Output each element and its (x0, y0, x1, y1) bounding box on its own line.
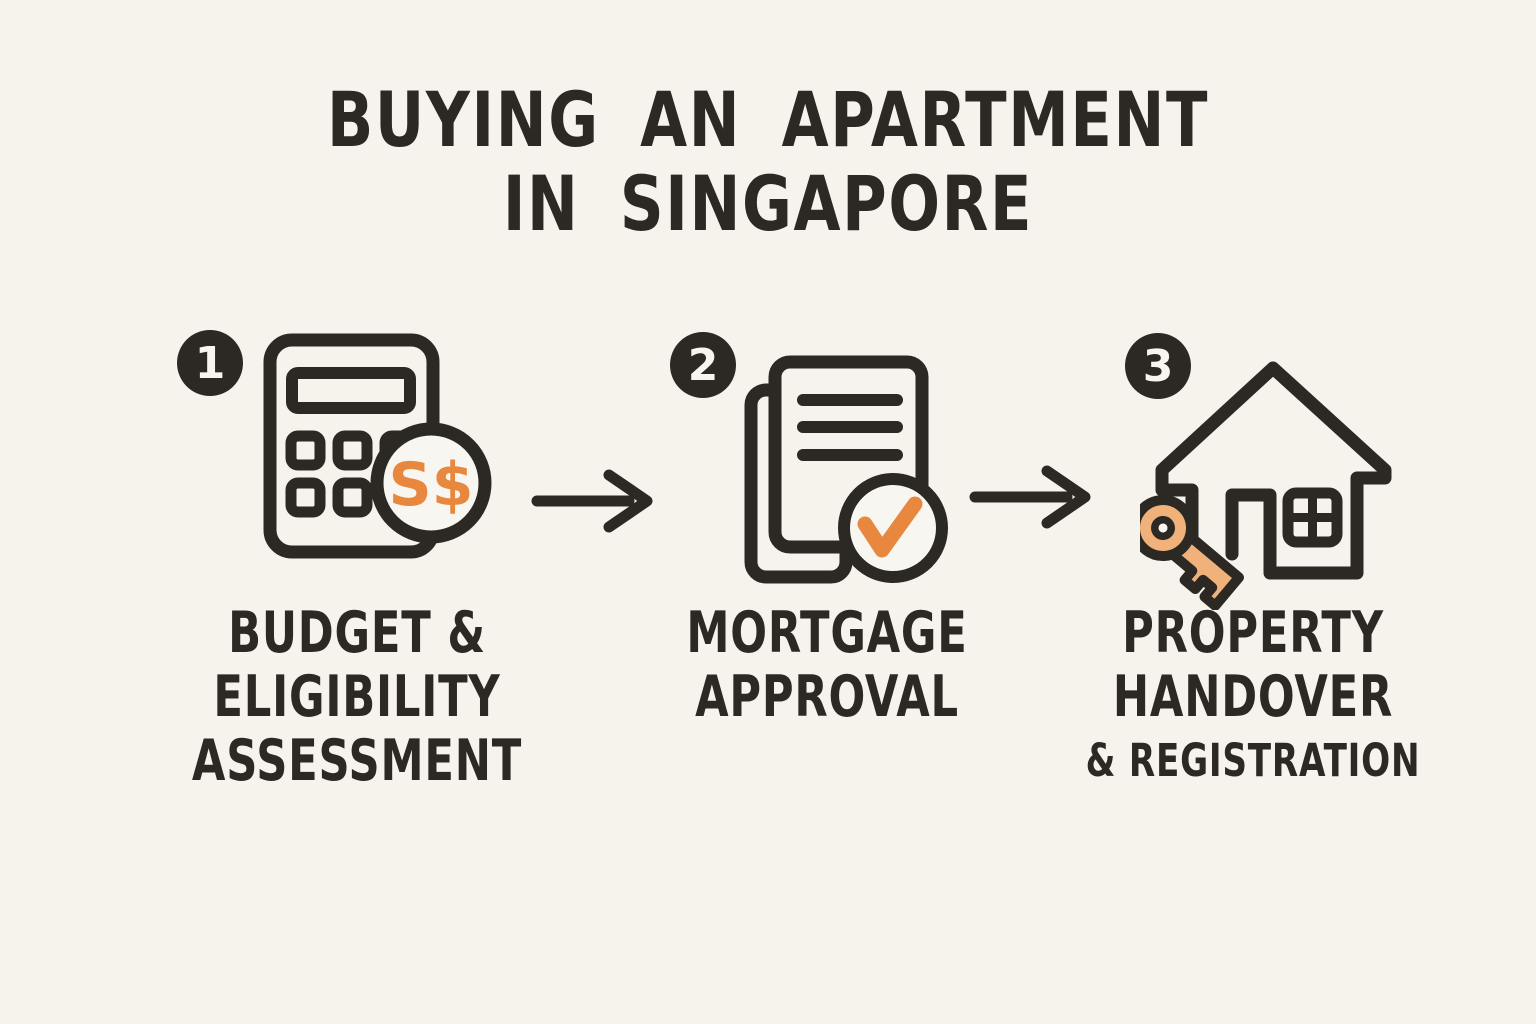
documents-checkmark-icon (740, 343, 955, 588)
calculator-display (292, 373, 410, 408)
page-title-line-1: BUYING AN APARTMENT (154, 78, 1383, 162)
arrow-right-icon (963, 458, 1103, 538)
step-3-label: PROPERTY HANDOVER & REGISTRATION (1071, 601, 1436, 793)
page-title: BUYING AN APARTMENT IN SINGAPORE (154, 78, 1383, 246)
step-1-number-badge: 1 (177, 330, 243, 396)
window (1288, 493, 1337, 542)
step-1-label: BUDGET & ELIGIBILITY ASSESSMENT (175, 601, 540, 793)
house-key-icon (1140, 350, 1400, 610)
step-1-number: 1 (195, 338, 226, 389)
step-2-label: MORTGAGE APPROVAL (645, 601, 1010, 729)
infographic: { "title": { "line1": "BUYING AN APARTME… (0, 0, 1536, 1024)
sgd-coin-text: S$ (389, 450, 474, 520)
arrow-right-icon (525, 462, 665, 542)
page-title-line-2: IN SINGAPORE (154, 162, 1383, 246)
step-2-number: 2 (688, 340, 719, 391)
step-2-number-badge: 2 (670, 332, 736, 398)
calculator-sgd-coin-icon: S$ (260, 331, 500, 566)
